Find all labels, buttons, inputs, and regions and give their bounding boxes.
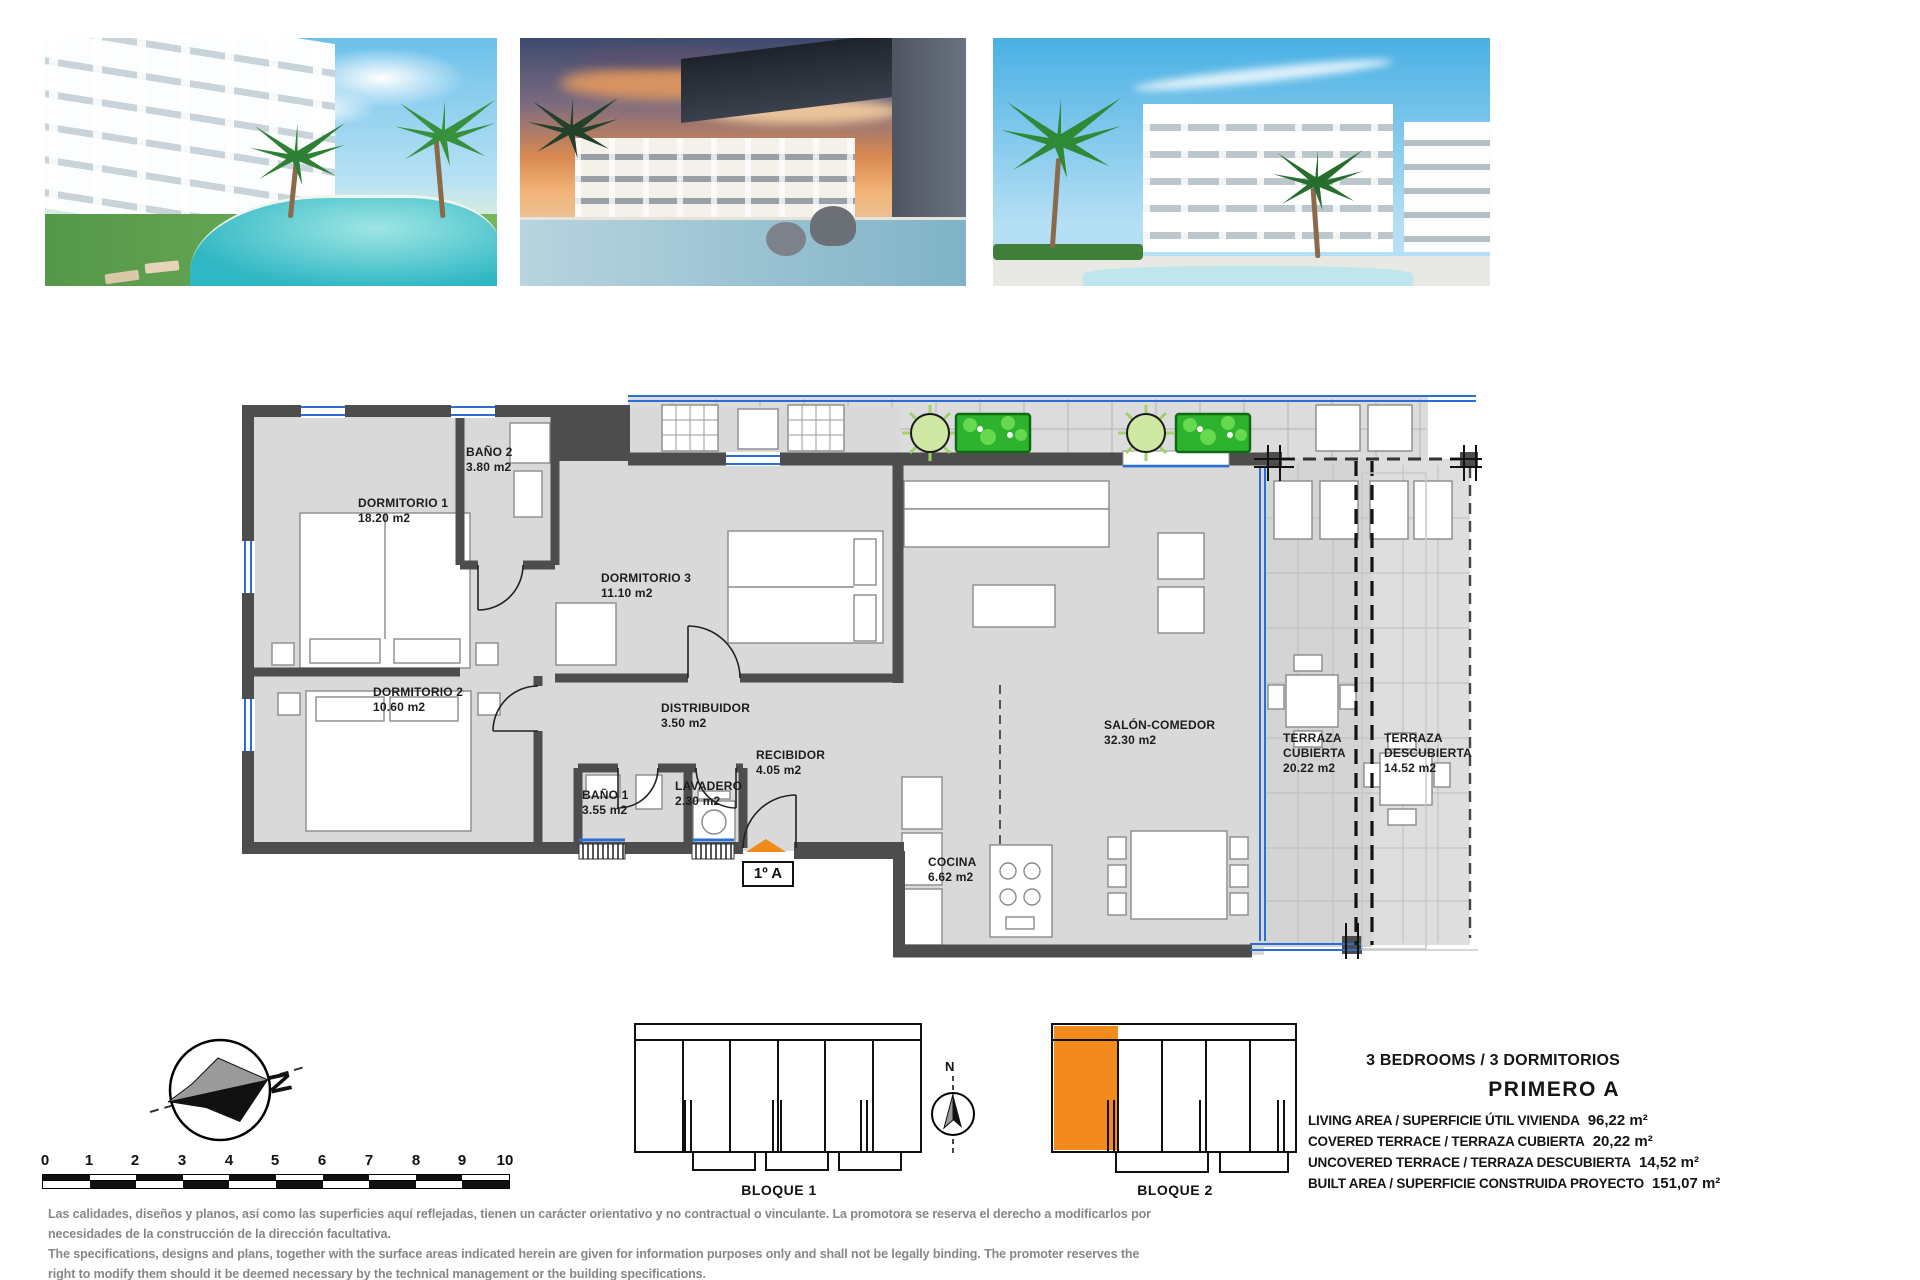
scale-tick: 0 xyxy=(34,1152,56,1169)
building-columns xyxy=(1143,104,1393,252)
render-photo-sunset-terrace xyxy=(520,38,966,286)
summary-row: COVERED TERRACE / TERRAZA CUBIERTA 20,22… xyxy=(1308,1131,1620,1152)
disclaimer-en-line1: The specifications, designs and plans, t… xyxy=(48,1244,1198,1264)
scale-tick: 9 xyxy=(451,1152,473,1169)
hedge-planter-icon xyxy=(956,414,1030,452)
hedge xyxy=(993,244,1143,260)
scale-tick: 5 xyxy=(264,1152,286,1169)
room-label-salon-comedor: SALÓN-COMEDOR32.30 m2 xyxy=(1104,718,1215,748)
room-label-dormitorio-3: DORMITORIO 311.10 m2 xyxy=(601,571,691,601)
scale-tick: 1 xyxy=(78,1152,100,1169)
summary-row: LIVING AREA / SUPERFICIE ÚTIL VIVIENDA 9… xyxy=(1308,1110,1620,1131)
scale-tick: 6 xyxy=(311,1152,333,1169)
scale-tick: 10 xyxy=(494,1152,516,1169)
hedge-planter-icon xyxy=(1176,414,1250,452)
disclaimer-es-line2: necesidades de la construcción de la dir… xyxy=(48,1224,1198,1244)
bloque-1-label: BLOQUE 1 xyxy=(633,1182,925,1198)
scale-bar-ruler xyxy=(42,1174,510,1189)
room-label-bano-2: BAÑO 23.80 m2 xyxy=(466,445,513,475)
bloque-1-diagram xyxy=(633,1022,925,1178)
disclaimer-en-line2: right to modify them should it be deemed… xyxy=(48,1264,1198,1280)
room-label-lavadero: LAVADERO2.30 m2 xyxy=(675,779,742,809)
scale-tick: 2 xyxy=(124,1152,146,1169)
area-summary: 3 BEDROOMS / 3 DORMITORIOS PRIMERO A LIV… xyxy=(1308,1052,1620,1194)
lounge-chair xyxy=(810,206,856,246)
pool xyxy=(1083,266,1413,286)
bloque-2-label: BLOQUE 2 xyxy=(1050,1182,1300,1198)
render-photo-building-day xyxy=(993,38,1490,286)
building xyxy=(1404,122,1490,252)
room-label-dormitorio-1: DORMITORIO 118.20 m2 xyxy=(358,496,448,526)
brochure-page: DORMITORIO 118.20 m2 BAÑO 23.80 m2 DORMI… xyxy=(0,0,1920,1280)
scale-tick: 7 xyxy=(358,1152,380,1169)
entrance-arrow-icon xyxy=(746,839,786,852)
room-label-distribuidor: DISTRIBUIDOR3.50 m2 xyxy=(661,701,750,731)
pool xyxy=(520,217,966,286)
room-label-dormitorio-2: DORMITORIO 210.60 m2 xyxy=(373,685,463,715)
room-label-bano-1: BAÑO 13.55 m2 xyxy=(582,788,629,818)
sun-plant-icon xyxy=(1118,405,1174,461)
compass-rose: N xyxy=(148,1028,318,1148)
room-label-terraza-cubierta: TERRAZA CUBIERTA20.22 m2 xyxy=(1283,731,1349,776)
render-photo-pool-garden xyxy=(45,38,497,286)
bloque-2-diagram xyxy=(1050,1022,1300,1178)
sun-plant-icon xyxy=(902,405,958,461)
floor-plan: DORMITORIO 118.20 m2 BAÑO 23.80 m2 DORMI… xyxy=(238,393,1483,963)
unit-badge: 1º A xyxy=(742,861,794,887)
scale-tick: 4 xyxy=(218,1152,240,1169)
compass-small: N xyxy=(930,1062,976,1158)
unit-name: PRIMERO A xyxy=(1308,1078,1620,1102)
disclaimer-es-line1: Las calidades, diseños y planos, así com… xyxy=(48,1204,1198,1224)
summary-row: BUILT AREA / SUPERFICIE CONSTRUIDA PROYE… xyxy=(1308,1173,1620,1194)
bedrooms-header: 3 BEDROOMS / 3 DORMITORIOS xyxy=(1308,1052,1620,1070)
room-label-cocina: COCINA6.62 m2 xyxy=(928,855,977,885)
scale-tick: 3 xyxy=(171,1152,193,1169)
summary-row: UNCOVERED TERRACE / TERRAZA DESCUBIERTA … xyxy=(1308,1152,1620,1173)
scale-tick: 8 xyxy=(405,1152,427,1169)
north-label: N xyxy=(945,1059,954,1074)
legal-disclaimer: Las calidades, diseños y planos, así com… xyxy=(48,1204,1198,1280)
room-label-terraza-descubierta: TERRAZA DESCUBIERTA14.52 m2 xyxy=(1384,731,1472,776)
scale-bar: 0 1 2 3 4 5 6 7 8 9 10 xyxy=(42,1152,510,1198)
room-label-recibidor: RECIBIDOR4.05 m2 xyxy=(756,748,825,778)
compass-small-icon xyxy=(930,1062,976,1158)
lounge-chair xyxy=(766,222,806,256)
floor-plan-drawing xyxy=(238,393,1483,963)
building-columns xyxy=(575,138,855,226)
